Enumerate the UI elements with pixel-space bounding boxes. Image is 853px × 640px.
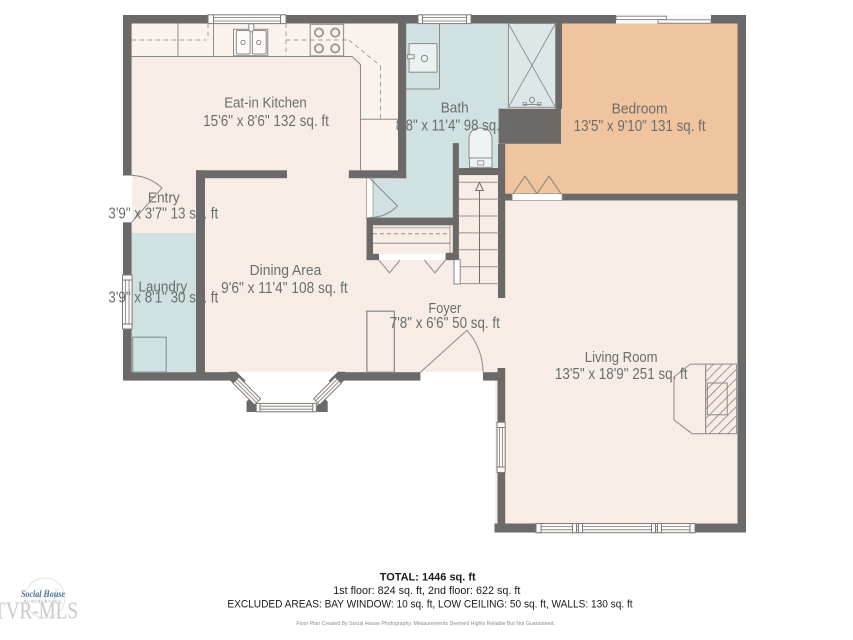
- svg-text:9'6" x 11'4" 108 sq. ft: 9'6" x 11'4" 108 sq. ft: [221, 280, 348, 297]
- svg-text:13'5" x 18'9" 251 sq. ft: 13'5" x 18'9" 251 sq. ft: [555, 366, 688, 383]
- svg-text:3'9" x 8'1" 30 sq. ft: 3'9" x 8'1" 30 sq. ft: [108, 290, 218, 307]
- svg-text:Dining Area: Dining Area: [250, 262, 322, 279]
- svg-text:Entry: Entry: [148, 189, 180, 206]
- svg-text:Living Room: Living Room: [585, 349, 658, 366]
- svg-text:Bath: Bath: [441, 100, 469, 117]
- svg-text:8'8" x 11'4" 98 sq. ft: 8'8" x 11'4" 98 sq. ft: [396, 118, 512, 135]
- svg-text:13'5" x 9'10" 131 sq. ft: 13'5" x 9'10" 131 sq. ft: [574, 118, 706, 135]
- svg-text:EXCLUDED AREAS: BAY WINDOW: 10: EXCLUDED AREAS: BAY WINDOW: 10 sq. ft, L…: [227, 599, 632, 611]
- svg-text:Eat-in Kitchen: Eat-in Kitchen: [224, 95, 307, 112]
- svg-text:1st floor: 824 sq. ft, 2nd flo: 1st floor: 824 sq. ft, 2nd floor: 622 sq…: [333, 585, 520, 597]
- svg-text:TVR-MLS: TVR-MLS: [0, 599, 78, 625]
- svg-text:15'6" x 8'6" 132 sq. ft: 15'6" x 8'6" 132 sq. ft: [203, 113, 329, 130]
- svg-text:Floor Plan Created By Social H: Floor Plan Created By Social House Photo…: [296, 621, 555, 627]
- svg-text:Bedroom: Bedroom: [612, 101, 668, 118]
- svg-text:3'9" x 3'7" 13 sq. ft: 3'9" x 3'7" 13 sq. ft: [108, 206, 218, 223]
- svg-text:TOTAL: 1446 sq. ft: TOTAL: 1446 sq. ft: [380, 572, 476, 584]
- svg-text:7'8" x 6'6" 50 sq. ft: 7'8" x 6'6" 50 sq. ft: [390, 315, 501, 332]
